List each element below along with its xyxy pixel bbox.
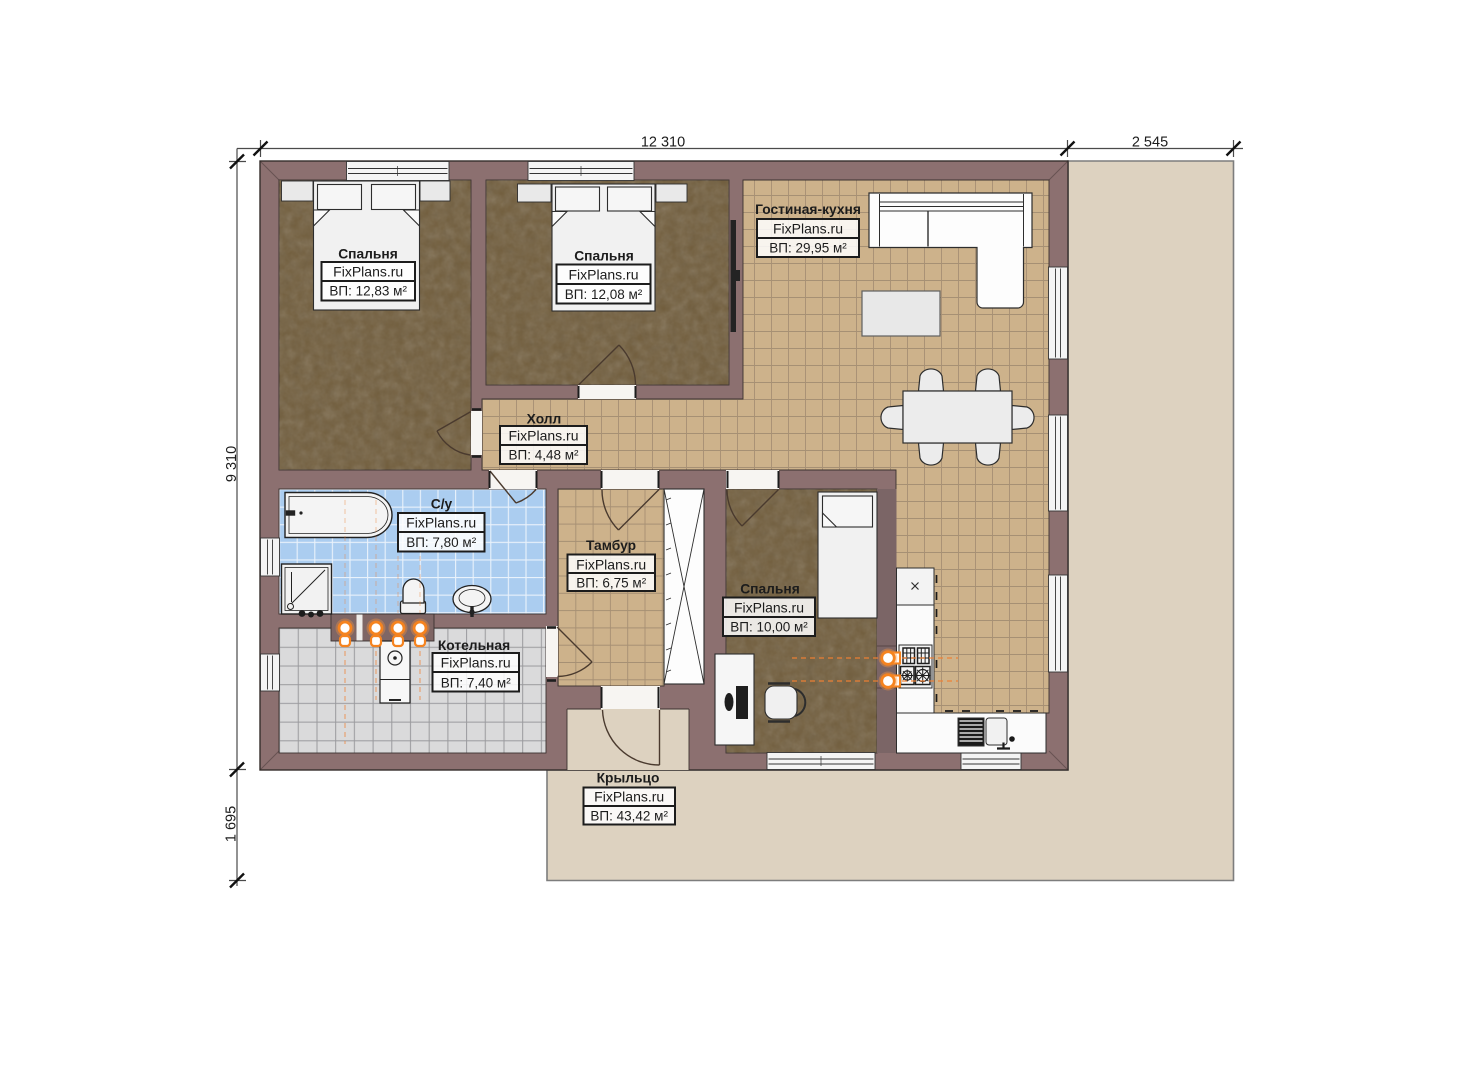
svg-text:ВП: 4,48 м²: ВП: 4,48 м² — [508, 448, 579, 463]
svg-text:ВП: 29,95 м²: ВП: 29,95 м² — [769, 241, 847, 256]
svg-text:ВП: 6,75 м²: ВП: 6,75 м² — [576, 576, 647, 591]
svg-text:Крыльцо: Крыльцо — [597, 771, 660, 786]
svg-text:Спальня: Спальня — [574, 249, 634, 264]
svg-text:ВП: 12,08 м²: ВП: 12,08 м² — [565, 287, 643, 302]
svg-text:ВП: 12,83 м²: ВП: 12,83 м² — [329, 284, 407, 299]
svg-text:Тамбур: Тамбур — [586, 538, 636, 553]
svg-text:FixPlans.ru: FixPlans.ru — [333, 264, 403, 280]
svg-text:Гостиная-кухня: Гостиная-кухня — [755, 202, 861, 217]
svg-text:12 310: 12 310 — [641, 135, 685, 151]
svg-text:FixPlans.ru: FixPlans.ru — [406, 515, 476, 531]
svg-text:FixPlans.ru: FixPlans.ru — [441, 655, 511, 671]
svg-text:FixPlans.ru: FixPlans.ru — [594, 789, 664, 805]
svg-text:FixPlans.ru: FixPlans.ru — [734, 600, 804, 616]
svg-text:2 545: 2 545 — [1132, 135, 1168, 151]
svg-text:Спальня: Спальня — [740, 582, 800, 597]
svg-text:ВП: 10,00 м²: ВП: 10,00 м² — [730, 620, 808, 635]
svg-text:FixPlans.ru: FixPlans.ru — [576, 557, 646, 573]
svg-text:ВП: 43,42 м²: ВП: 43,42 м² — [590, 809, 668, 824]
svg-text:ВП: 7,80 м²: ВП: 7,80 м² — [406, 535, 477, 550]
svg-text:Холл: Холл — [527, 412, 562, 427]
svg-text:FixPlans.ru: FixPlans.ru — [568, 267, 638, 283]
svg-text:Котельная: Котельная — [438, 638, 510, 653]
svg-text:ВП: 7,40 м²: ВП: 7,40 м² — [441, 676, 512, 691]
svg-text:FixPlans.ru: FixPlans.ru — [773, 221, 843, 237]
svg-text:С/у: С/у — [431, 497, 453, 512]
svg-text:1 695: 1 695 — [224, 806, 240, 842]
svg-text:Спальня: Спальня — [338, 247, 398, 262]
svg-text:FixPlans.ru: FixPlans.ru — [508, 428, 578, 444]
svg-text:9 310: 9 310 — [224, 446, 240, 482]
